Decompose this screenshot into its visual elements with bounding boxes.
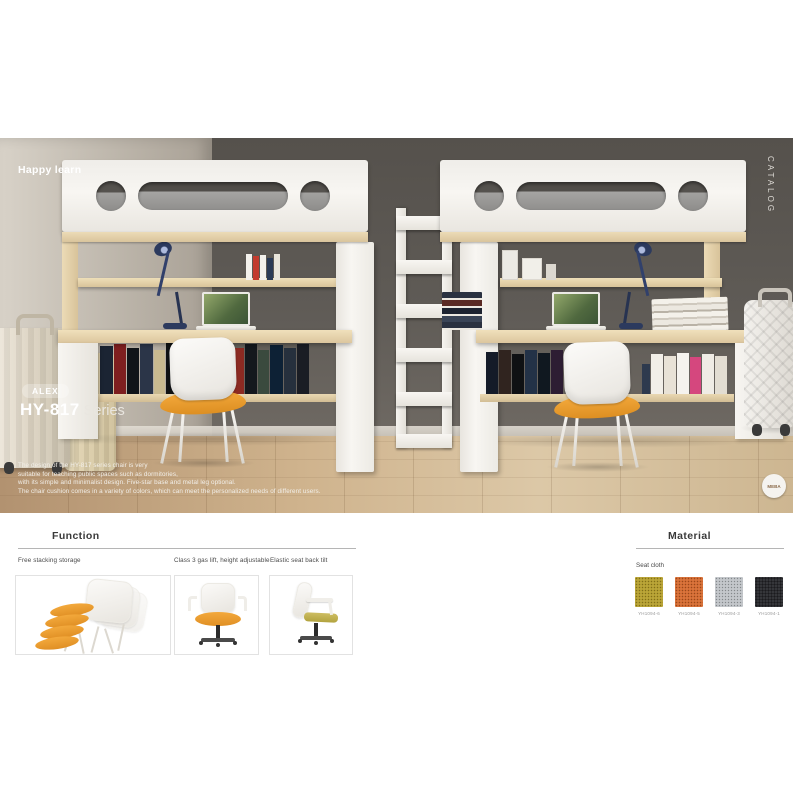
desk-lamp [154, 242, 198, 334]
brand-logo: MEBA [762, 474, 786, 498]
desk-chair [150, 338, 260, 468]
bed-porthole [678, 181, 708, 211]
series-suffix: Series [84, 403, 125, 419]
magazine-stack [651, 297, 728, 334]
swatch-label: YH1094-3 [718, 611, 740, 616]
laptop-screen [202, 292, 250, 326]
desk-chair [544, 342, 654, 472]
description-line: The chair cushion comes in a variety of … [18, 488, 321, 497]
swatch-color [755, 577, 783, 607]
swatch-label: YH1094-5 [678, 611, 700, 616]
side-cabinet [336, 242, 374, 472]
bed-porthole [96, 181, 126, 211]
suitcase-right [744, 300, 793, 428]
series-badge: ALEX [22, 384, 69, 398]
bed-window-mattress [138, 182, 288, 210]
laptop-screen [552, 292, 600, 326]
function-caption-2: Class 3 gas lift, height adjustable [174, 557, 270, 564]
fabric-swatch-2: YH1094-5 [672, 577, 706, 616]
book-shelf [78, 278, 346, 287]
fabric-swatch-1: YH1094-6 [632, 577, 666, 616]
hero-photo: Happy learn [0, 138, 793, 513]
tagline: Happy learn [18, 164, 81, 176]
laptop [546, 292, 606, 334]
bed-porthole [474, 181, 504, 211]
lamp-head [152, 240, 173, 259]
material-divider [636, 548, 784, 549]
series-description: The design of the HY-817 series chair is… [18, 462, 321, 497]
bed-porthole [300, 181, 330, 211]
swatch-label: YH1094-1 [758, 611, 780, 616]
swatch-label: YH1094-6 [638, 611, 660, 616]
bunk-unit-left [62, 160, 374, 513]
chair-backrest [563, 341, 631, 405]
swatch-color [715, 577, 743, 607]
bed-window-mattress [516, 182, 666, 210]
lamp-head [632, 240, 653, 259]
function-image-gas-lift [174, 575, 259, 655]
bunk-unit-right [440, 160, 752, 513]
shelf-boxes [502, 248, 562, 280]
catalog-page: Happy learn [0, 0, 800, 800]
description-line: The design of the HY-817 series chair is… [18, 462, 321, 471]
material-section-title: Material [668, 530, 711, 542]
function-section-title: Function [52, 530, 100, 542]
swatch-color [675, 577, 703, 607]
description-line: suitable for teaching public spaces such… [18, 471, 321, 480]
catalog-vertical-label: CATALOG [766, 156, 775, 214]
chair-backrest [169, 337, 237, 401]
function-caption-3: Elastic seat back tilt [270, 557, 328, 564]
shelf-books [246, 254, 280, 280]
function-image-stacking [15, 575, 171, 655]
fabric-swatch-3: YH1094-3 [712, 577, 746, 616]
function-divider [18, 548, 356, 549]
book-stack [442, 292, 482, 330]
wood-post [62, 242, 78, 340]
under-desk-books [642, 350, 727, 400]
laptop [196, 292, 256, 334]
series-title: HY-817Series [20, 400, 125, 420]
seat-cloth-label: Seat cloth [636, 562, 664, 569]
swatch-color [635, 577, 663, 607]
function-image-back-tilt [269, 575, 353, 655]
description-line: with its simple and minimalist design. F… [18, 479, 321, 488]
series-code: HY-817 [20, 400, 80, 419]
fabric-swatch-4: YH1094-1 [752, 577, 786, 616]
function-caption-1: Free stacking storage [18, 557, 81, 564]
desk-lamp [608, 242, 652, 334]
